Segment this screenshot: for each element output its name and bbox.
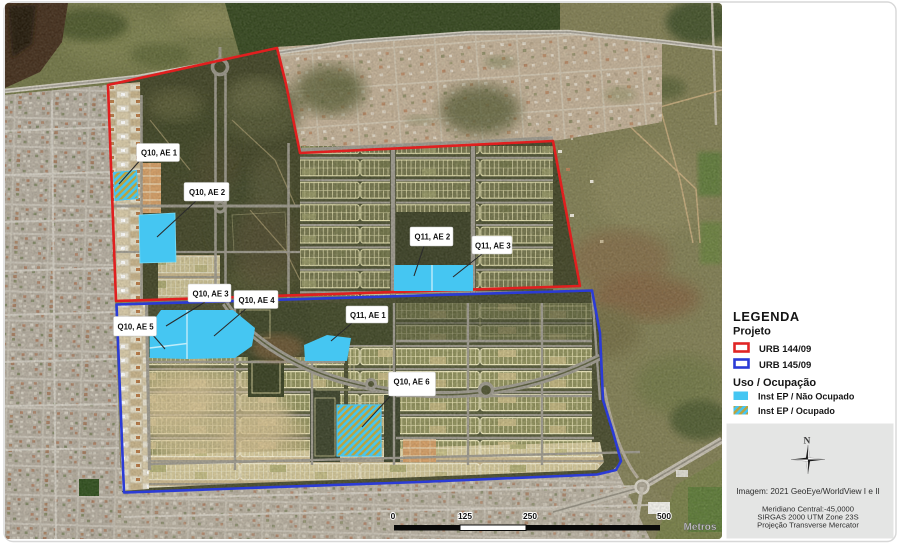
svg-text:Q10, AE 3: Q10, AE 3 [193, 290, 230, 299]
svg-text:Q10, AE 5: Q10, AE 5 [118, 323, 155, 332]
svg-text:LEGENDA: LEGENDA [733, 309, 800, 324]
svg-text:125: 125 [458, 511, 472, 521]
svg-text:Projeto: Projeto [733, 326, 771, 338]
svg-text:Imagem: 2021 GeoEye/WorldView: Imagem: 2021 GeoEye/WorldView I e II [736, 487, 880, 496]
svg-text:Q10, AE 6: Q10, AE 6 [394, 378, 431, 387]
svg-text:Inst EP / Não Ocupado: Inst EP / Não Ocupado [758, 392, 855, 402]
svg-text:URB 145/09: URB 145/09 [759, 360, 811, 371]
svg-text:Q11, AE 2: Q11, AE 2 [415, 233, 451, 242]
svg-text:Projeção Transverse Mercator: Projeção Transverse Mercator [757, 521, 859, 530]
svg-text:500: 500 [657, 511, 671, 521]
svg-text:Q10, AE 1: Q10, AE 1 [141, 149, 178, 158]
svg-text:Inst EP / Ocupado: Inst EP / Ocupado [758, 406, 835, 416]
svg-text:URB 144/09: URB 144/09 [759, 344, 811, 355]
svg-text:Q10, AE 4: Q10, AE 4 [239, 296, 276, 305]
svg-text:0: 0 [391, 511, 396, 521]
svg-text:250: 250 [523, 511, 537, 521]
svg-text:N: N [804, 437, 811, 447]
svg-text:Uso / Ocupação: Uso / Ocupação [733, 377, 816, 389]
svg-text:Q11, AE 1: Q11, AE 1 [350, 311, 386, 320]
svg-text:Q10, AE 2: Q10, AE 2 [189, 188, 226, 197]
svg-text:Q11, AE 3: Q11, AE 3 [475, 242, 511, 251]
svg-text:Metros: Metros [684, 522, 717, 533]
